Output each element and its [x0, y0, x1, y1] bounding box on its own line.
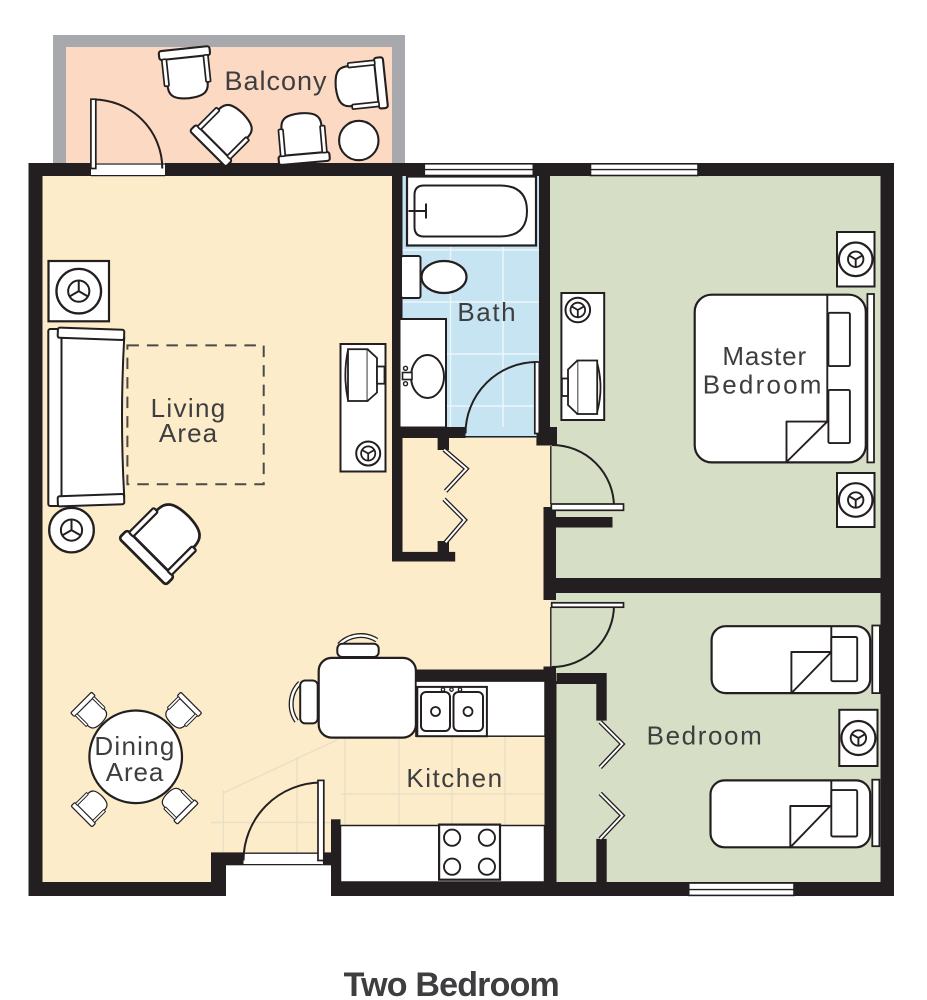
svg-text:Area: Area [159, 418, 218, 448]
svg-text:Kitchen: Kitchen [406, 763, 503, 793]
svg-text:Balcony: Balcony [224, 66, 327, 96]
svg-text:Area: Area [106, 757, 165, 787]
svg-text:Bedroom: Bedroom [703, 370, 824, 400]
svg-text:Master: Master [722, 341, 807, 371]
svg-text:Bedroom: Bedroom [647, 721, 764, 751]
svg-text:Two Bedroom: Two Bedroom [344, 966, 559, 1000]
svg-text:Bath: Bath [457, 297, 517, 327]
